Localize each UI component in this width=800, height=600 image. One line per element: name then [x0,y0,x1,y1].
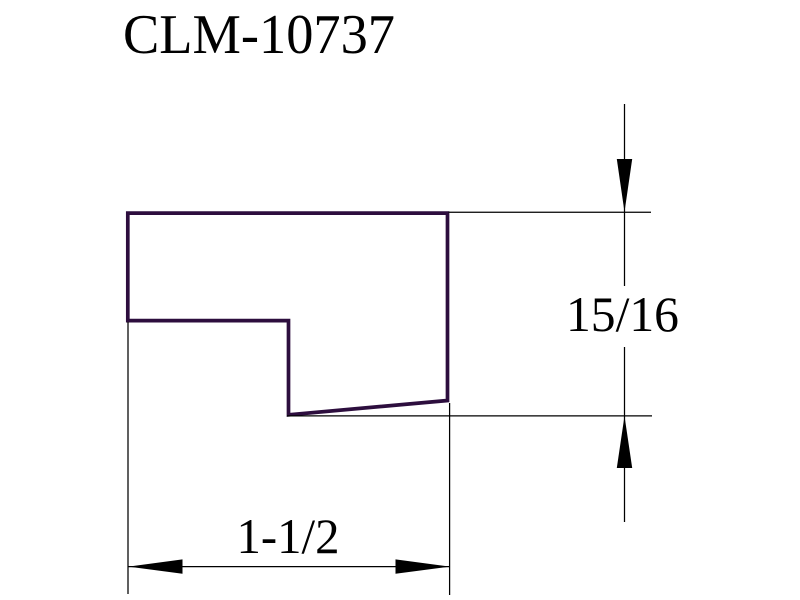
svg-text:15/16: 15/16 [566,286,679,342]
svg-text:CLM-10737: CLM-10737 [123,4,395,66]
svg-text:1-1/2: 1-1/2 [237,508,340,564]
